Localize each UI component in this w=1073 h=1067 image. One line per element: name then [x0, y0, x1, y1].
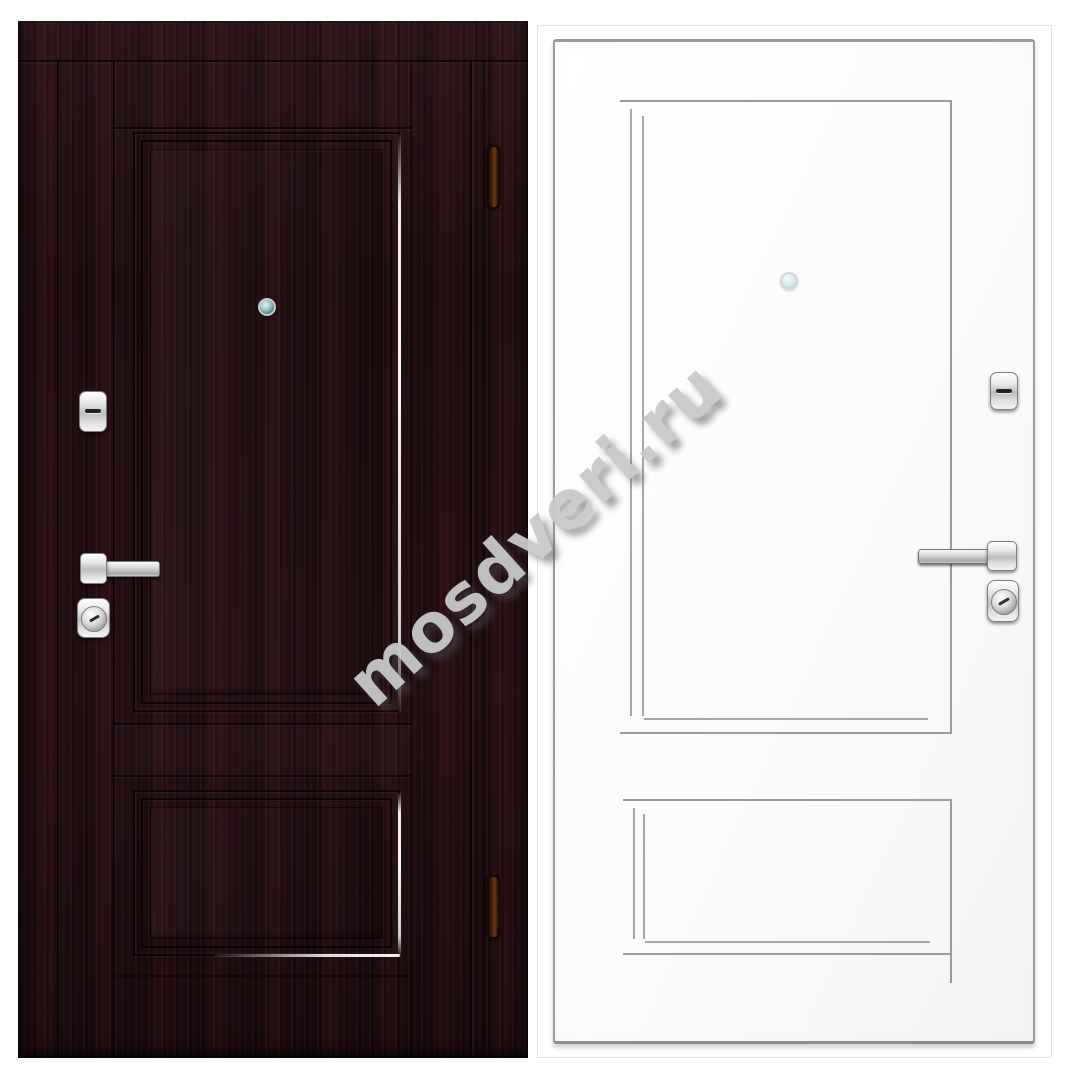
frame-line — [57, 60, 59, 1056]
middle-rail — [113, 723, 412, 777]
peephole — [780, 272, 798, 290]
door-right-white — [553, 39, 1035, 1044]
panel-shadow-line — [643, 814, 645, 939]
panel-face — [150, 807, 383, 939]
panel-shadow-line — [950, 955, 952, 983]
door-left-wenge — [18, 21, 528, 1058]
bottom-rail-line — [113, 975, 412, 977]
silver-accent-line — [214, 954, 400, 957]
cylinder-lock — [987, 580, 1019, 622]
peephole — [258, 298, 276, 316]
handle-lever — [918, 549, 990, 564]
deadbolt-lock — [990, 372, 1018, 410]
deadbolt-lock — [79, 391, 107, 432]
handle-rose — [80, 553, 107, 584]
stile-line — [113, 60, 115, 1056]
frame-line — [18, 60, 528, 62]
top-rail-line — [113, 127, 412, 129]
panel-shadow-line — [644, 718, 928, 720]
deadbolt-slot — [85, 409, 101, 413]
stile-line — [410, 60, 412, 1056]
handle-rose — [987, 541, 1017, 571]
cylinder-lock — [77, 598, 110, 638]
hinge-top — [487, 145, 500, 209]
panel-face — [150, 149, 383, 695]
hinge-bottom — [487, 875, 500, 939]
silver-accent-line — [398, 793, 401, 956]
product-image: mosdveri.ru — [0, 0, 1073, 1067]
deadbolt-slot — [996, 389, 1012, 393]
panel-shadow-line — [645, 941, 930, 943]
lower-panel-outline — [623, 799, 952, 955]
upper-panel — [133, 132, 400, 712]
panel-shadow-line — [633, 808, 635, 939]
lower-panel — [133, 790, 400, 956]
